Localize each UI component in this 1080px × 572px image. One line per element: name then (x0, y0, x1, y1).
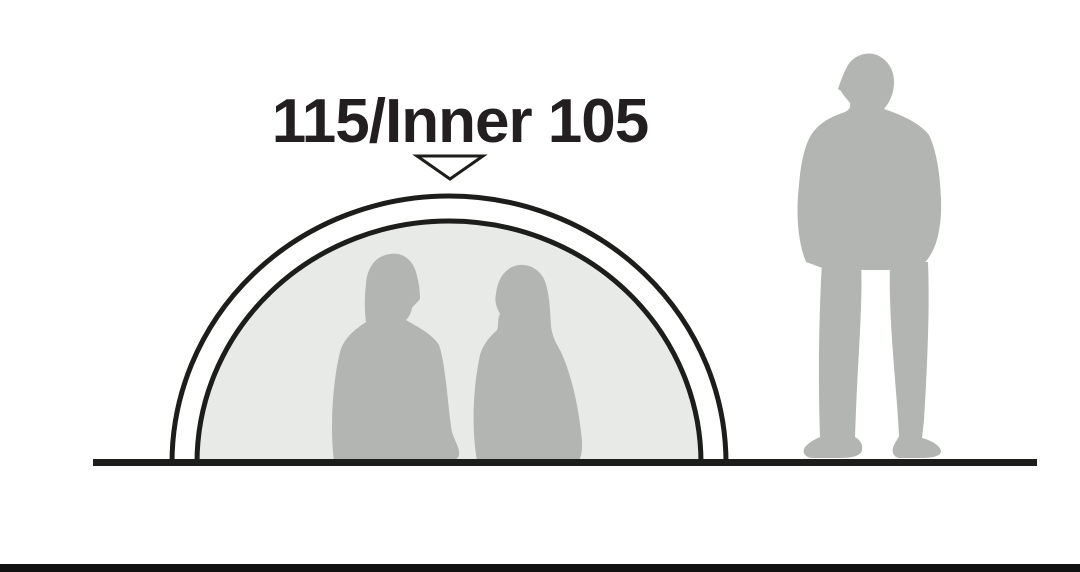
triangle-down-icon (417, 156, 483, 179)
ground-line (93, 459, 1037, 466)
standing-person-left-leg (804, 262, 863, 458)
standing-person-silhouette (797, 53, 941, 458)
bottom-border-bar (0, 564, 1080, 572)
diagram-canvas: 115/Inner 105 (0, 0, 1080, 572)
standing-person-torso (797, 53, 941, 270)
standing-person-right-leg (890, 262, 941, 458)
height-label: 115/Inner 105 (272, 87, 649, 156)
tent-height-diagram: 115/Inner 105 (0, 0, 1080, 572)
